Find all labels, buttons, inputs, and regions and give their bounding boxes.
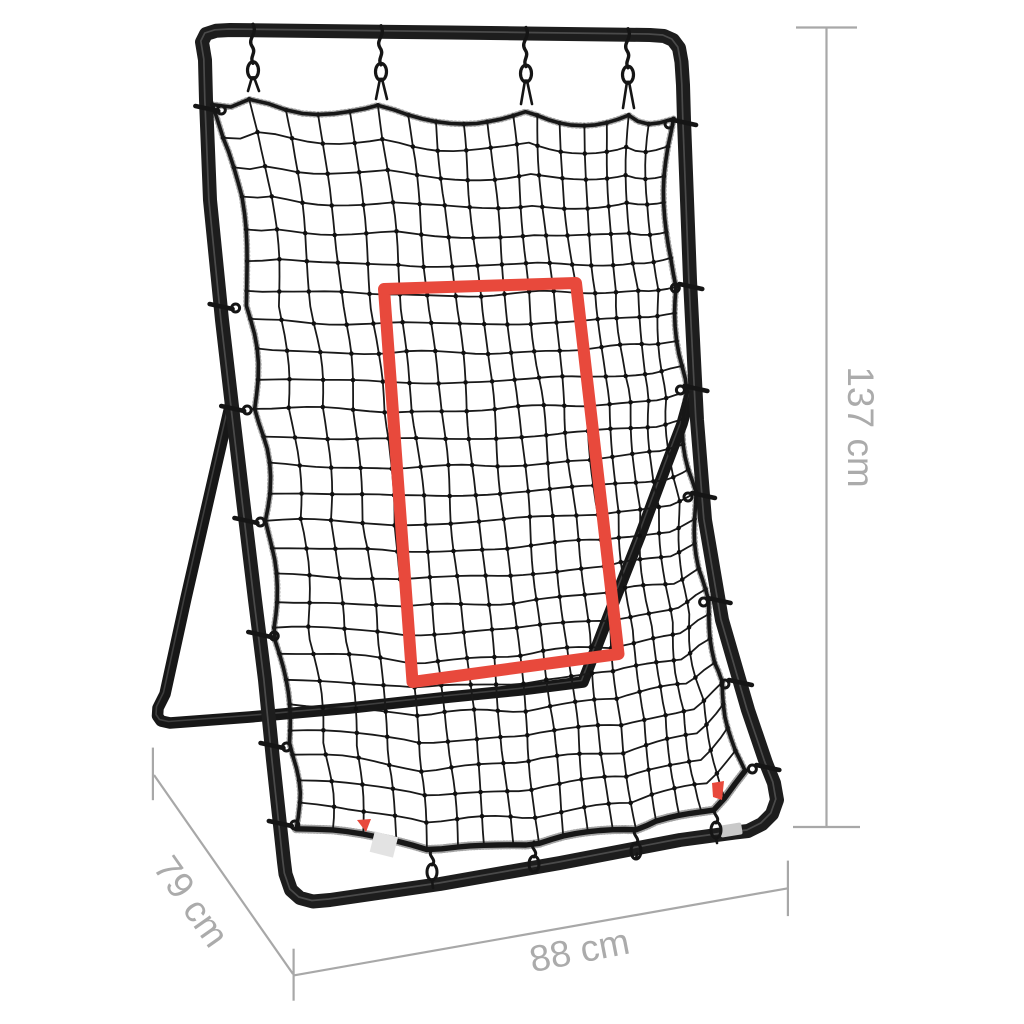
svg-text:137 cm: 137 cm bbox=[840, 366, 881, 487]
